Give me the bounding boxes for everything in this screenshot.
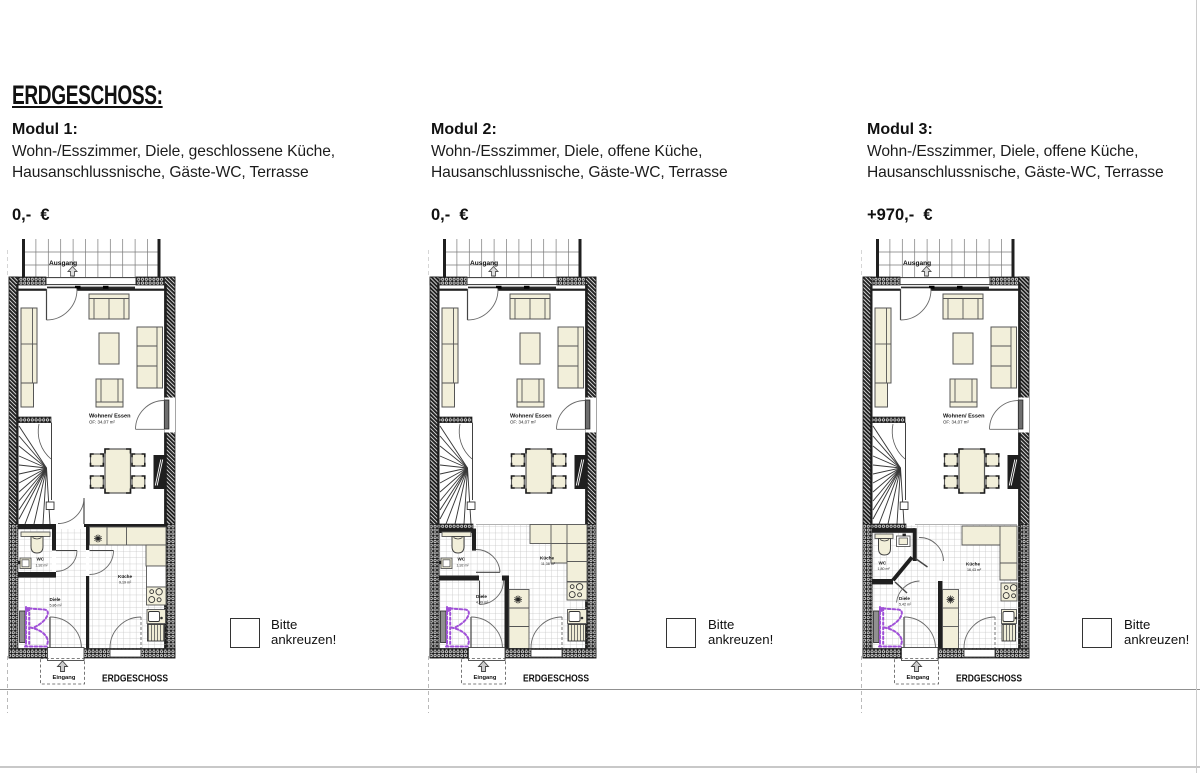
- svg-text:Eingang: Eingang: [474, 675, 497, 681]
- svg-text:5,86 m²: 5,86 m²: [50, 604, 63, 608]
- svg-text:ERDGESCHOSS: ERDGESCHOSS: [102, 674, 168, 685]
- svg-text:Diele: Diele: [476, 594, 487, 599]
- svg-text:16,43 m²: 16,43 m²: [967, 568, 982, 572]
- svg-text:Eingang: Eingang: [907, 675, 930, 681]
- svg-text:WC: WC: [879, 561, 887, 566]
- svg-text:1,80 m²: 1,80 m²: [878, 567, 891, 571]
- svg-text:1,92 m²: 1,92 m²: [457, 564, 470, 568]
- svg-text:5,42 m²: 5,42 m²: [899, 603, 912, 607]
- svg-text:11,38 m²: 11,38 m²: [541, 562, 556, 566]
- svg-text:Küche: Küche: [540, 556, 554, 561]
- svg-text:ERDGESCHOSS: ERDGESCHOSS: [956, 674, 1022, 685]
- svg-text:Eingang: Eingang: [53, 675, 76, 681]
- svg-text:Diele: Diele: [50, 597, 61, 602]
- svg-text:WC: WC: [37, 557, 45, 562]
- svg-text:OF: 34,07 m²: OF: 34,07 m²: [510, 420, 536, 425]
- svg-text:OF: 34,07 m²: OF: 34,07 m²: [943, 420, 969, 425]
- svg-text:1,92 m²: 1,92 m²: [36, 564, 49, 568]
- svg-text:Küche: Küche: [118, 574, 132, 579]
- svg-text:4,99 m²: 4,99 m²: [476, 601, 489, 605]
- svg-text:Diele: Diele: [899, 596, 910, 601]
- svg-text:ERDGESCHOSS: ERDGESCHOSS: [523, 674, 589, 685]
- svg-text:Ausgang: Ausgang: [903, 260, 931, 267]
- svg-text:Ausgang: Ausgang: [470, 260, 498, 267]
- svg-text:Küche: Küche: [966, 562, 980, 567]
- svg-text:Ausgang: Ausgang: [49, 260, 77, 267]
- svg-text:OF: 34,07 m²: OF: 34,07 m²: [89, 420, 115, 425]
- svg-text:9,19 m²: 9,19 m²: [119, 581, 132, 585]
- svg-text:WC: WC: [458, 557, 466, 562]
